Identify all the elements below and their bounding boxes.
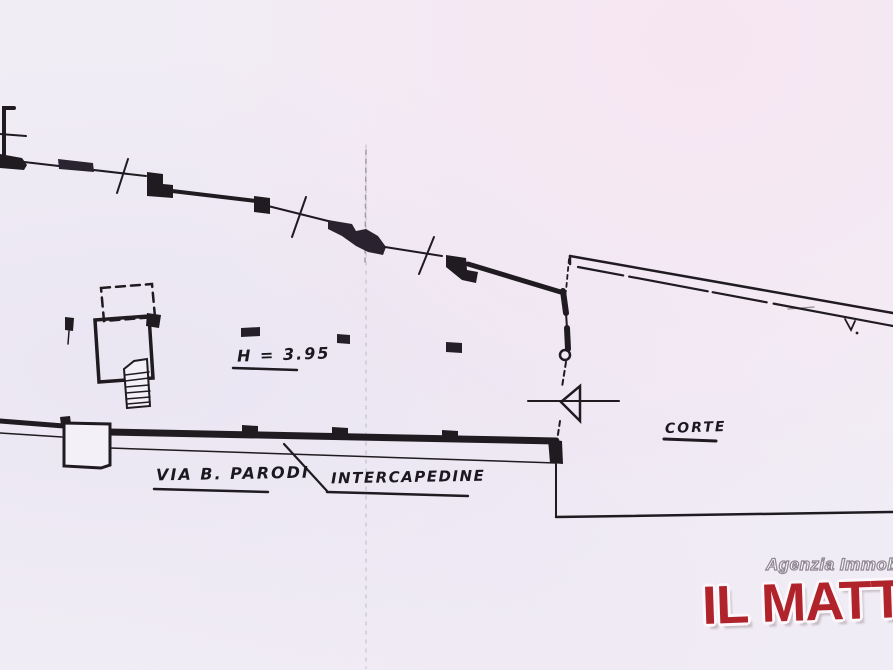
ceiling-height-label: H = 3.95 [237,343,331,365]
north-wall [0,108,564,293]
floor-plan-drawing [0,0,893,670]
scan-fold-crease [365,145,366,668]
door-swing-symbol [528,386,619,421]
stairwell [65,284,161,408]
agency-logo-text: IL MATTONE [701,564,893,637]
street-name-label: VIA B. PARODI [156,463,310,485]
south-wall [0,416,563,468]
court-boundary [556,256,893,517]
east-wall [557,291,570,441]
courtyard-label: CORTE [665,419,727,437]
scanned-floor-plan-background: H = 3.95 VIA B. PARODI INTERCAPEDINE COR… [0,0,893,670]
intercapedine-label: INTERCAPEDINE [331,467,486,488]
